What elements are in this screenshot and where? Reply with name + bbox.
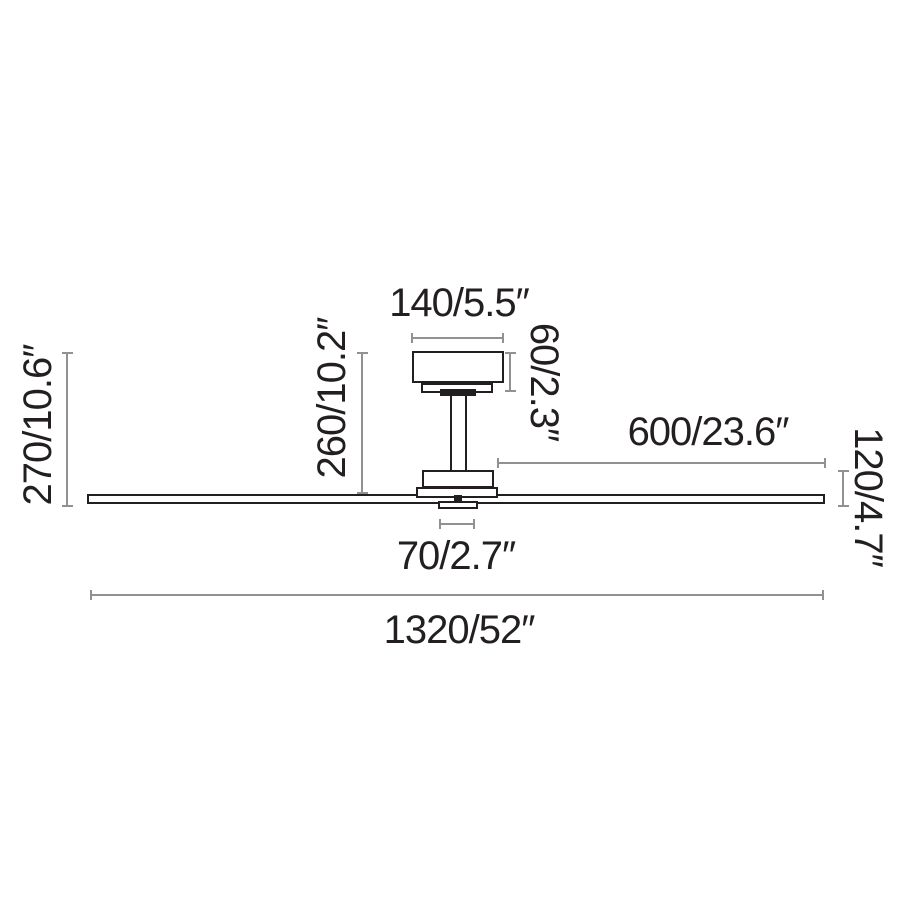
dim-tick-start — [357, 352, 368, 354]
downrod-collar — [440, 389, 476, 396]
light-kit — [438, 501, 478, 509]
dim-label-blade-length: 600/23.6″ — [558, 410, 858, 454]
dim-tick-end — [824, 458, 826, 468]
dim-tick-start — [90, 590, 92, 600]
ceiling-fan-dimension-diagram: 140/5.5″ 60/2.3″ 260/10.2″ 270/10.6″ 600… — [0, 0, 901, 901]
dim-line-canopy-width — [411, 337, 504, 339]
dim-tick-start — [497, 458, 499, 468]
dim-label-sweep-diameter: 1320/52″ — [309, 608, 609, 652]
dim-tick-end — [473, 519, 475, 529]
dim-line-body-height — [842, 470, 844, 507]
dim-line-canopy-height — [509, 352, 511, 392]
dim-tick-start — [439, 519, 441, 529]
dim-tick-start — [62, 352, 73, 354]
dim-tick-start — [505, 352, 516, 354]
dim-line-total-drop — [66, 352, 68, 507]
dim-label-hub-width: 70/2.7″ — [306, 534, 606, 578]
dim-tick-end — [62, 505, 73, 507]
dim-tick-end — [822, 590, 824, 600]
dim-line-sweep-diameter — [90, 594, 824, 596]
dim-label-total-drop: 270/10.6″ — [16, 275, 60, 575]
ceiling-canopy — [412, 351, 504, 383]
downrod — [450, 394, 467, 472]
dim-label-canopy-height: 60/2.3″ — [522, 232, 566, 532]
dim-line-hub-width — [439, 523, 475, 525]
motor-housing-top — [422, 470, 494, 488]
dim-label-body-height: 120/4.7″ — [846, 347, 890, 647]
dim-tick-start — [411, 333, 413, 343]
dim-line-canopy-to-blade-drop — [361, 352, 363, 494]
dim-tick-end — [502, 333, 504, 343]
dim-tick-end — [505, 390, 516, 392]
